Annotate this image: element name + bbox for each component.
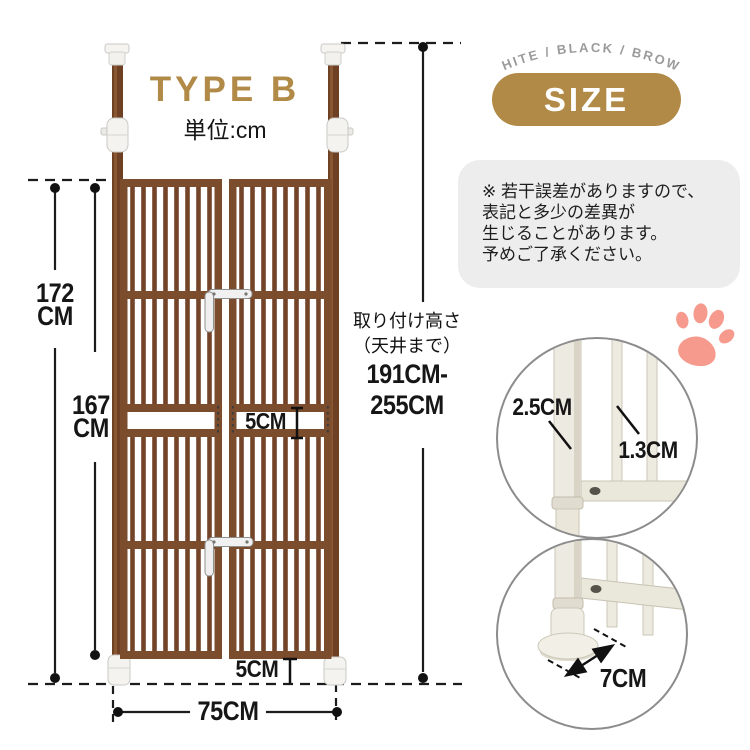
- size-badge: SIZE: [492, 73, 681, 126]
- height-172-label: 172 CM: [26, 282, 83, 328]
- type-b-label: TYPE B: [125, 70, 325, 110]
- width-label: 75CM: [191, 696, 264, 727]
- product-size-diagram: WHITE / BLACK / BROWN TYPE B 単位:cm SIZE …: [0, 0, 750, 750]
- install-height-subtitle: （天井まで）: [348, 334, 466, 359]
- pole-diameter-label: 2.5CM: [505, 394, 578, 422]
- foot-depth-label: 7CM: [594, 663, 651, 694]
- mid-gap-label: 5CM: [206, 408, 286, 435]
- paw-icon: [663, 297, 742, 374]
- floor-gap-label: 5CM: [202, 656, 279, 684]
- install-height-block: 取り付け高さ （天井まで） 191CM- 255CM: [348, 309, 466, 421]
- install-height-range-1: 191CM-: [356, 359, 459, 390]
- note-line: 生じることがあります。: [482, 223, 740, 244]
- bar-diameter-label: 1.3CM: [617, 437, 680, 465]
- detail-circle-foot: [497, 539, 690, 729]
- note-line: ※ 若干誤差がありますので、: [482, 181, 740, 202]
- color-options-label: WHITE / BLACK / BROWN: [0, 0, 683, 74]
- note-line: 予めご了承ください。: [482, 244, 740, 265]
- size-badge-text: SIZE: [544, 81, 629, 118]
- note-line: 表記と多少の差異が: [482, 202, 740, 223]
- disclaimer-note: ※ 若干誤差がありますので、 表記と多少の差異が 生じることがあります。 予めご…: [458, 160, 740, 288]
- height-167-label: 167 CM: [63, 394, 119, 440]
- install-height-title: 取り付け高さ: [348, 309, 466, 334]
- install-height-range-2: 255CM: [356, 390, 459, 421]
- unit-label: 単位:cm: [125, 111, 325, 145]
